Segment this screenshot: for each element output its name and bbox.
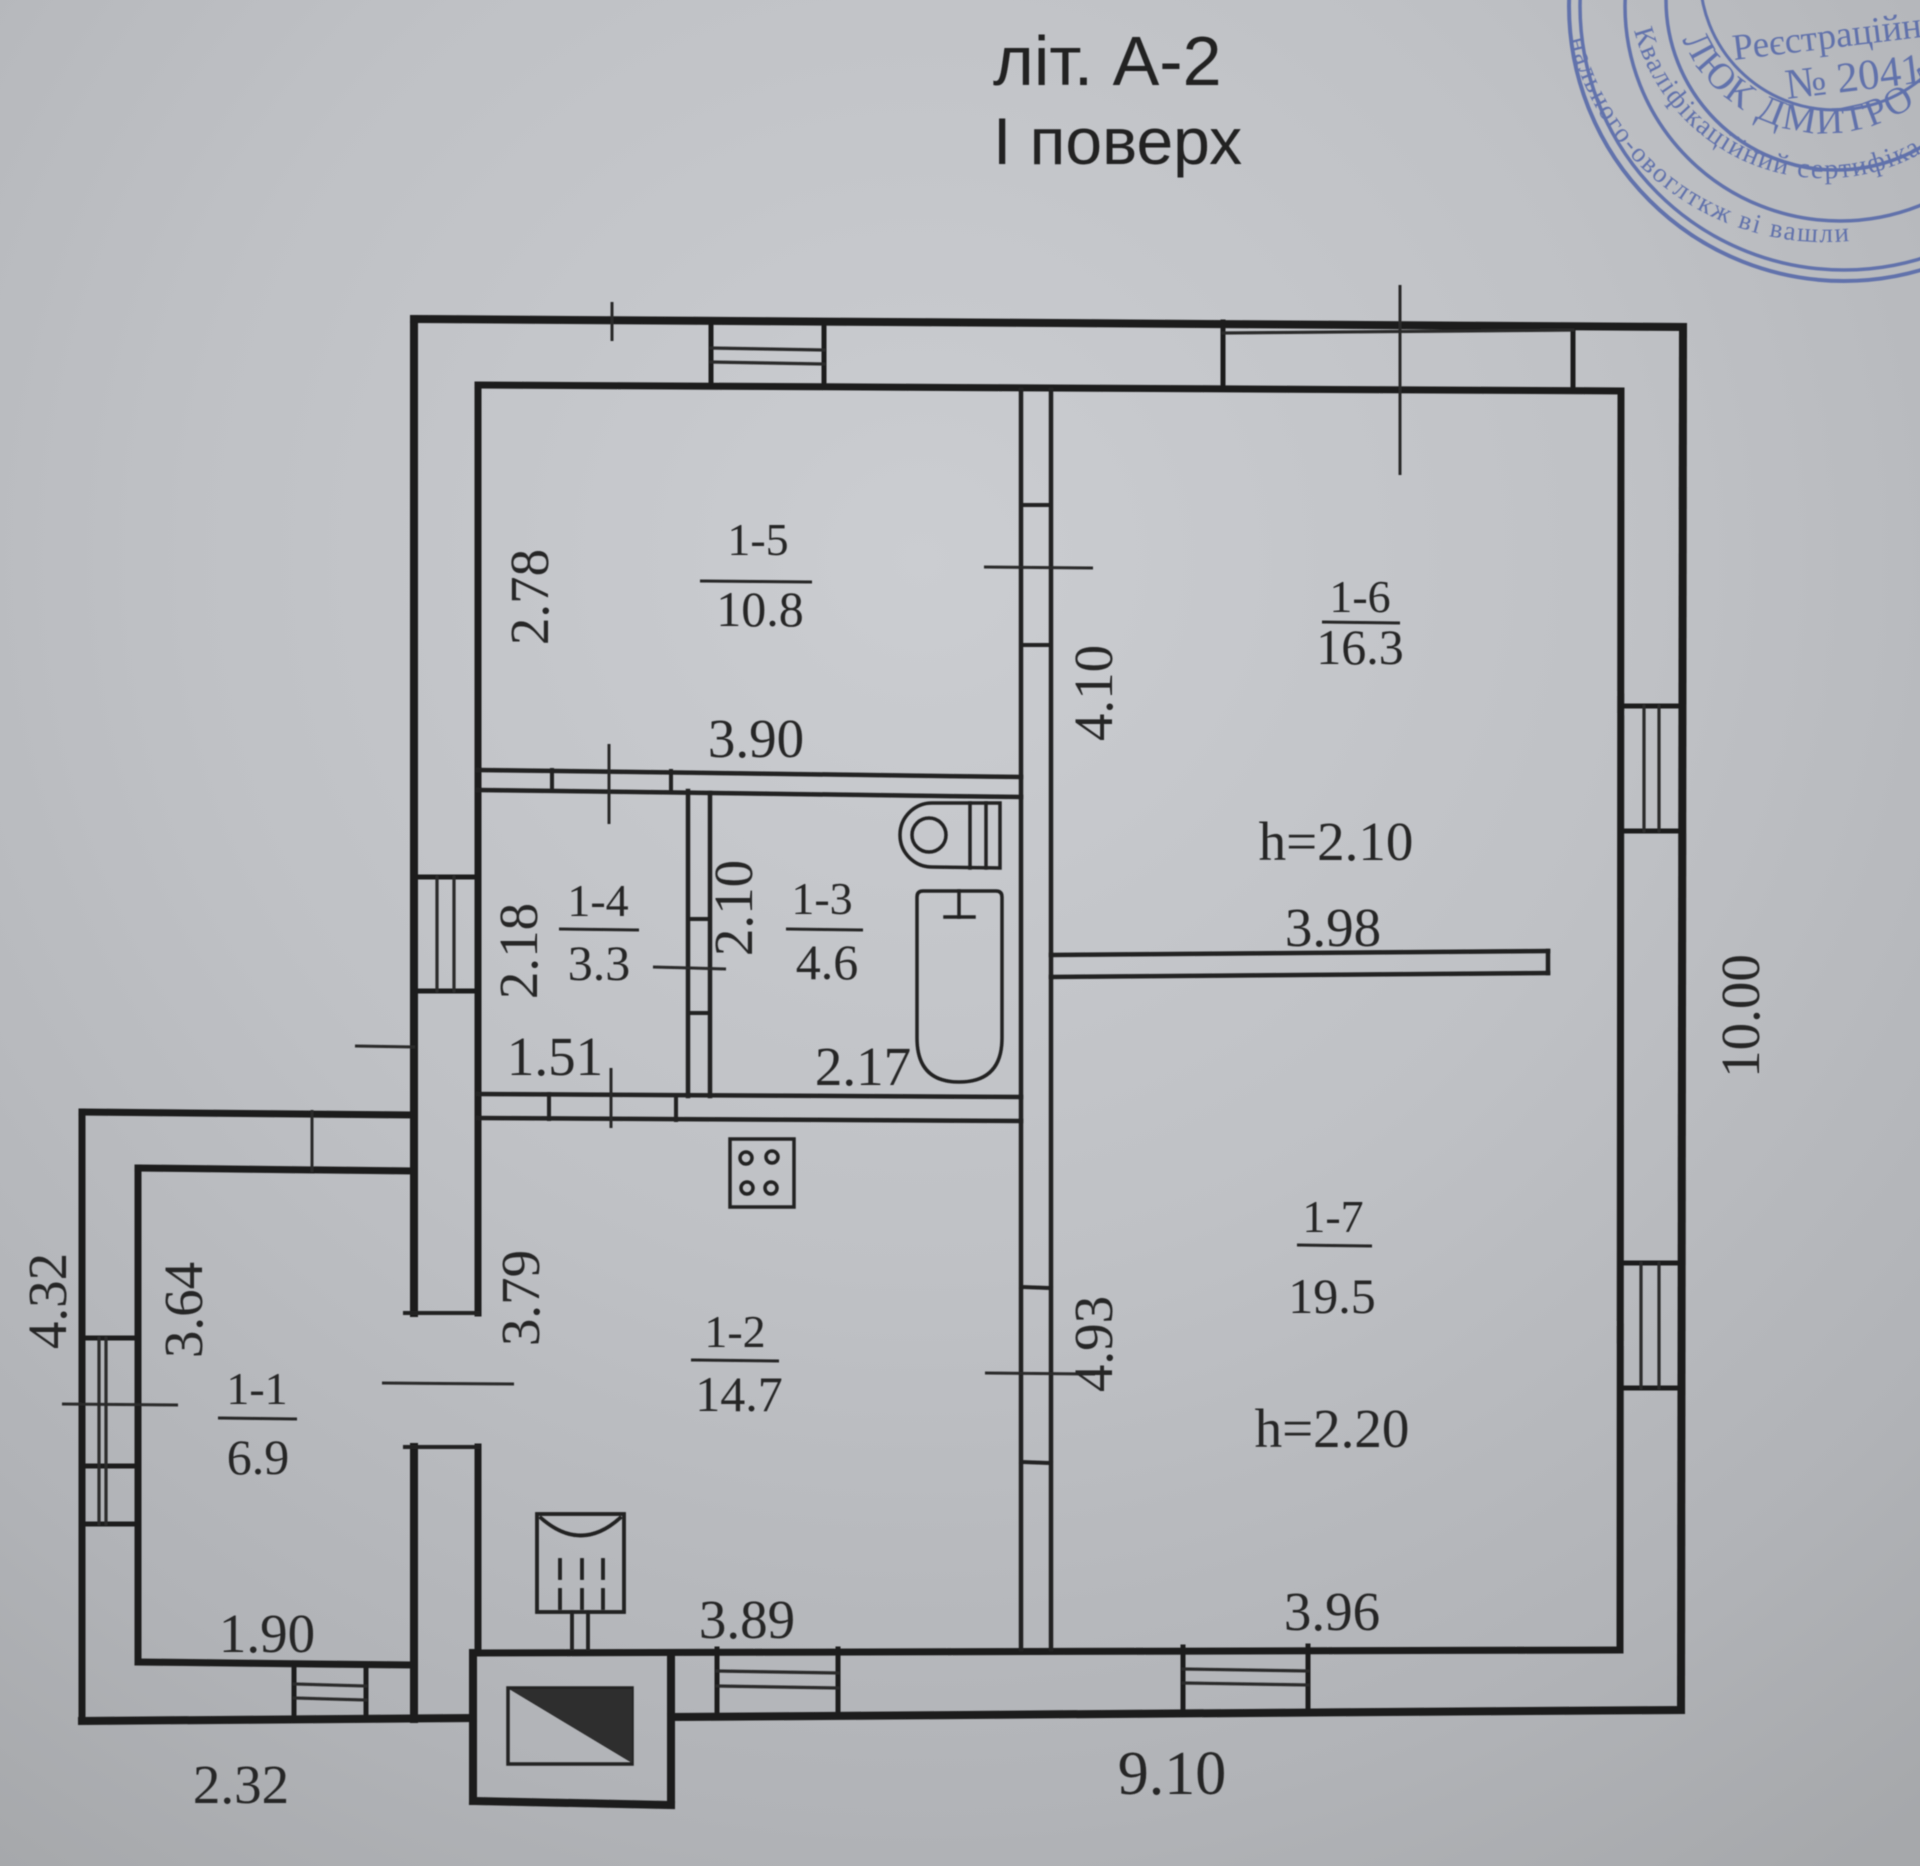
svg-text:3.90: 3.90 <box>708 708 804 769</box>
svg-text:h=2.10: h=2.10 <box>1259 811 1414 872</box>
svg-text:3.98: 3.98 <box>1285 897 1381 958</box>
svg-text:2.78: 2.78 <box>499 549 560 645</box>
svg-text:19.5: 19.5 <box>1288 1268 1376 1324</box>
svg-text:6.9: 6.9 <box>227 1429 290 1485</box>
svg-text:2.10: 2.10 <box>703 860 764 956</box>
svg-text:1-3: 1-3 <box>791 873 852 924</box>
svg-text:2.17: 2.17 <box>815 1036 911 1097</box>
svg-text:16.3: 16.3 <box>1316 619 1404 675</box>
svg-text:3.64: 3.64 <box>153 1262 214 1358</box>
svg-text:1.90: 1.90 <box>219 1603 315 1664</box>
svg-text:1-4: 1-4 <box>567 875 628 926</box>
svg-text:2.18: 2.18 <box>488 903 549 999</box>
svg-text:2.32: 2.32 <box>193 1754 289 1815</box>
svg-text:1-1: 1-1 <box>226 1363 287 1414</box>
svg-text:14.7: 14.7 <box>695 1366 783 1422</box>
svg-text:3.79: 3.79 <box>490 1250 551 1346</box>
svg-text:10.8: 10.8 <box>716 581 804 637</box>
svg-text:літ. А-2: літ. А-2 <box>993 22 1222 100</box>
svg-text:4.10: 4.10 <box>1063 645 1124 741</box>
svg-text:1-7: 1-7 <box>1302 1191 1363 1242</box>
svg-text:І поверх: І поверх <box>993 104 1242 178</box>
svg-text:3.89: 3.89 <box>699 1589 795 1650</box>
svg-text:3.96: 3.96 <box>1284 1581 1380 1642</box>
svg-text:1-5: 1-5 <box>727 514 788 565</box>
svg-text:h=2.20: h=2.20 <box>1255 1398 1410 1459</box>
svg-text:9.10: 9.10 <box>1118 1740 1227 1808</box>
svg-text:4.93: 4.93 <box>1063 1296 1124 1392</box>
svg-text:1.51: 1.51 <box>507 1026 603 1087</box>
svg-text:3.3: 3.3 <box>568 935 631 991</box>
svg-text:4.32: 4.32 <box>17 1253 78 1349</box>
svg-text:4.6: 4.6 <box>796 934 859 990</box>
svg-text:10.00: 10.00 <box>1710 954 1771 1078</box>
svg-text:1-6: 1-6 <box>1329 571 1390 622</box>
svg-text:1-2: 1-2 <box>704 1306 765 1357</box>
